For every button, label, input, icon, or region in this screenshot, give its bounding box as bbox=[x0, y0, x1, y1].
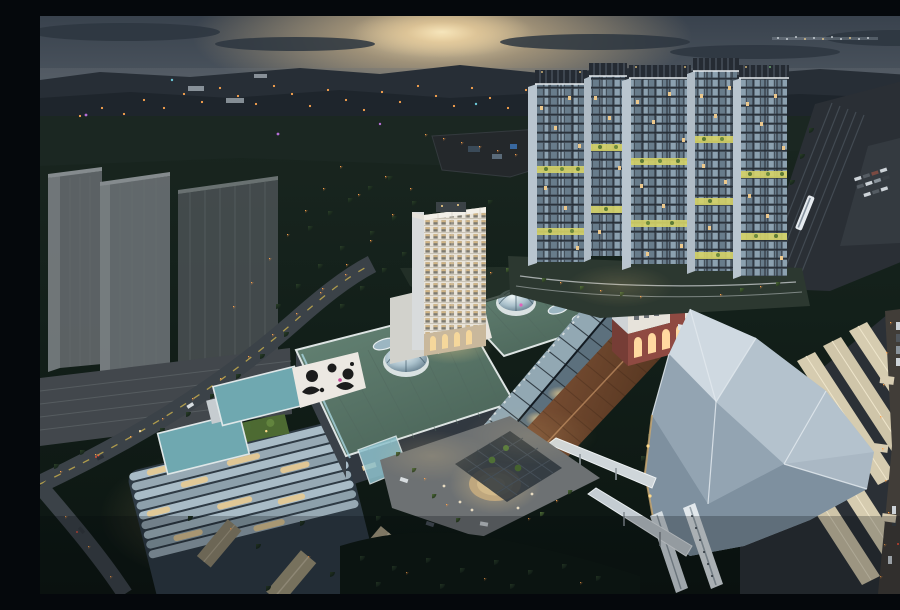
vignette-bottom bbox=[40, 516, 900, 594]
tower-5 bbox=[733, 65, 789, 279]
crown bbox=[589, 63, 627, 76]
crown bbox=[693, 58, 739, 71]
aerial-render bbox=[40, 16, 900, 594]
tower-3 bbox=[622, 65, 691, 270]
tower-4 bbox=[687, 58, 739, 274]
render-canvas bbox=[40, 16, 900, 594]
hotel-crown bbox=[436, 202, 466, 212]
crown bbox=[629, 65, 691, 78]
tower-2 bbox=[584, 63, 627, 262]
crown bbox=[535, 70, 587, 84]
crown bbox=[739, 65, 789, 78]
tower-1 bbox=[528, 70, 587, 266]
